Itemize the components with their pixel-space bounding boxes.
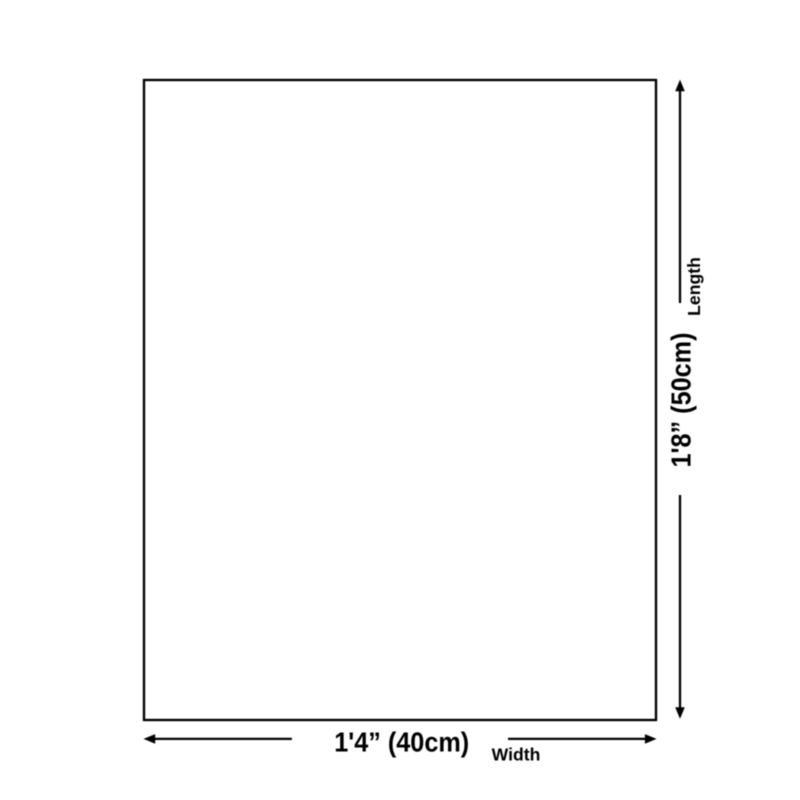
svg-text:Width: Width (492, 745, 541, 765)
svg-text:1'8” (50cm): 1'8” (50cm) (665, 333, 696, 468)
svg-text:Length: Length (684, 257, 704, 316)
svg-text:1'4” (40cm): 1'4” (40cm) (334, 727, 469, 758)
